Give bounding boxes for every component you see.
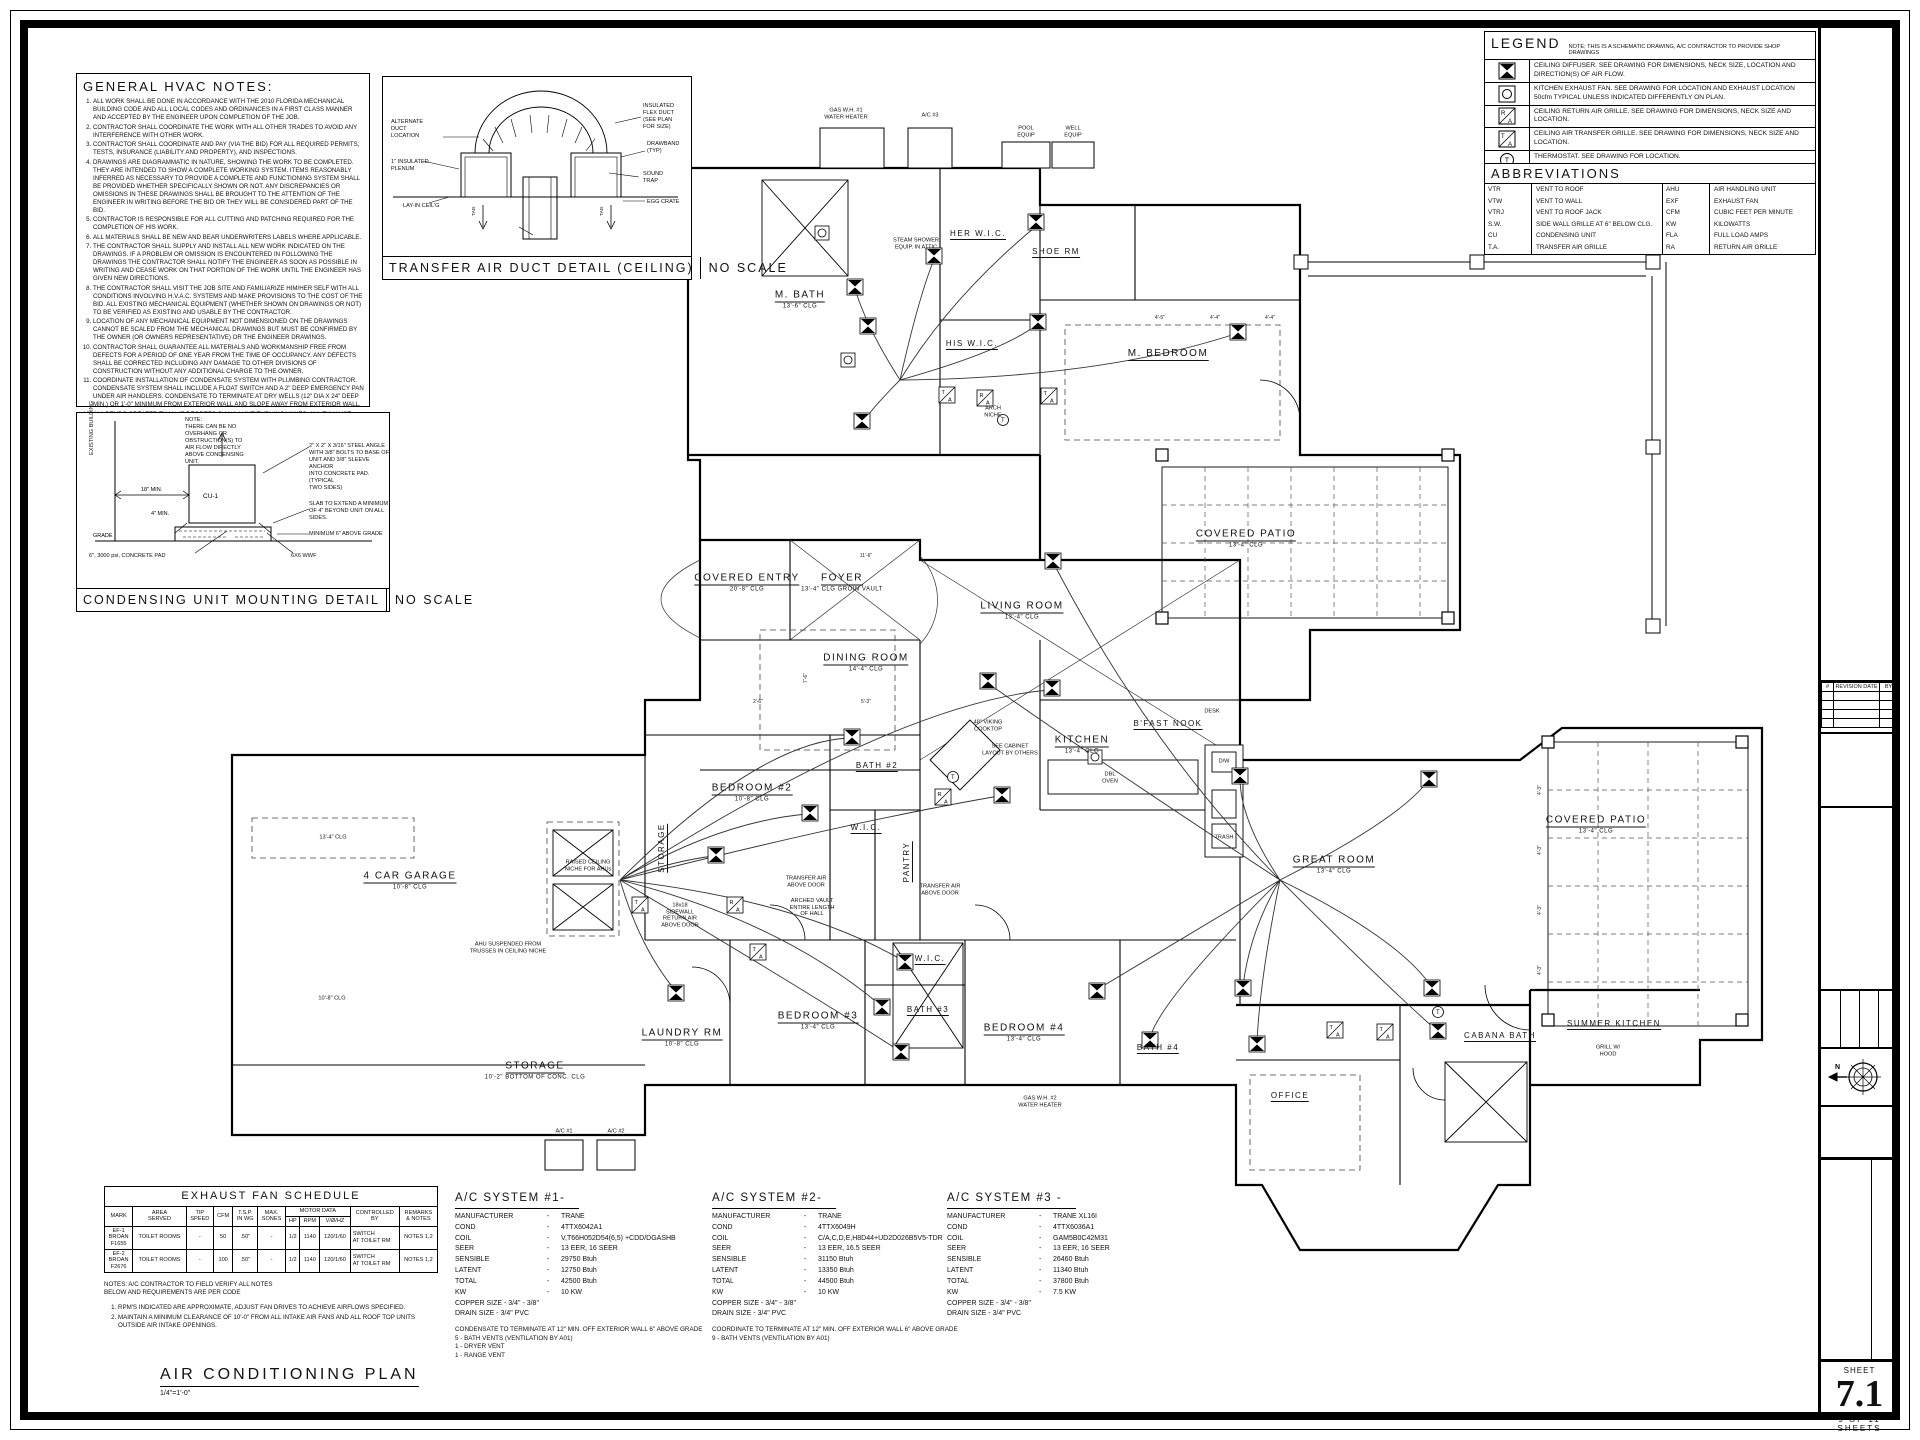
abbreviations-box: ABBREVIATIONS VTRVENT TO ROOF VTWVENT TO… (1484, 163, 1816, 255)
ahu-units (553, 830, 613, 930)
room-label: COVERED PATIO13'-4" CLG (1196, 524, 1296, 549)
sheet-number-box: SHEET 7.1 9 OF 11 SHEETS (1821, 1359, 1898, 1440)
room-label: COVERED PATIO13'-4" CLG (1546, 810, 1646, 835)
abbreviations-table: VTRVENT TO ROOF VTWVENT TO WALL VTRJVENT… (1485, 184, 1815, 254)
ac-system-2-title: A/C SYSTEM #2- (712, 1190, 836, 1209)
annotation: 18x18 SIDEWALL RETURN AIR ABOVE DOOR (661, 903, 699, 930)
annotation: AHU SUSPENDED FROM TRUSSES IN CEILING NI… (470, 941, 546, 954)
svg-text:A: A (1508, 119, 1512, 125)
condensing-detail-box: CU-1 18" MIN. 4" MIN. GRADE NOTE: THERE … (76, 412, 390, 612)
room-label: SHOE RM (1032, 241, 1080, 259)
room-label: LAUNDRY RM10'-8" CLG (642, 1023, 723, 1048)
annotation: DESK (1204, 709, 1219, 716)
walkway-band (1294, 255, 1666, 633)
exhaust-notes-head: NOTES: A/C CONTRACTOR TO FIELD VERIFY AL… (104, 1281, 438, 1298)
legend-row: KITCHEN EXHAUST FAN. SEE DRAWING FOR LOC… (1485, 82, 1815, 105)
cond-angle-label: 2" X 2" X 3/16" STEEL ANGLE WITH 3/8" BO… (309, 443, 389, 492)
annotation: DBL OVEN (1102, 771, 1118, 784)
state-box (1821, 1105, 1898, 1157)
transfer-scale: NO SCALE (700, 257, 796, 279)
ceiling-diffuser-icons (668, 214, 1446, 1060)
room-label: CABANA BATH (1464, 1025, 1536, 1043)
svg-text:TAG: TAG (599, 206, 605, 216)
room-label: KITCHEN13'-4" CLG (1055, 730, 1109, 755)
room-label: OFFICE (1271, 1085, 1309, 1103)
room-label: SUMMER KITCHEN (1567, 1013, 1661, 1031)
transfer-alternate-label: ALTERNATE DUCT LOCATION (391, 119, 423, 140)
page-title: AIR CONDITIONING PLAN (160, 1366, 419, 1387)
transfer-title: TRANSFER AIR DUCT DETAIL (CEILING) (383, 257, 700, 279)
plan-title-block: AIR CONDITIONING PLAN 1/4"=1'-0" (160, 1366, 419, 1397)
room-label: M. BATH13'-6" CLG (775, 285, 825, 310)
cond-pad-label: 6", 3000 psi, CONCRETE PAD (89, 553, 166, 560)
dimension: 5'-3" (861, 699, 871, 705)
exhaust-fan-schedule: EXHAUST FAN SCHEDULE MARK AREA SERVED TI… (104, 1186, 438, 1331)
info-strip (1821, 989, 1898, 1047)
general-notes-title: GENERAL HVAC NOTES: (77, 74, 369, 96)
cond-wwf-label: 6X6 WWF (291, 553, 316, 560)
annotation: STEAM SHOWER EQUIP. IN ATTIC (893, 237, 939, 250)
cond-title: CONDENSING UNIT MOUNTING DETAIL (77, 589, 386, 611)
annotation: GAS W.H. #2 WATER HEATER (1018, 1095, 1061, 1108)
dimension: 11'-6" (860, 553, 872, 559)
room-label: LIVING ROOM13'-4" CLG (980, 596, 1063, 621)
annotation: ARCH NICHE (984, 405, 1001, 418)
cond-above-label: MINIMUM 6" ABOVE GRADE (309, 531, 383, 538)
annotation: 13'-4" CLG (319, 835, 346, 842)
annotation: POOL EQUIP (1017, 125, 1034, 138)
room-label: COVERED ENTRY20'-8" CLG (694, 568, 799, 593)
dimension: 4'-5" (1155, 315, 1165, 321)
transfer-eggcrate-label: EGG CRATE (647, 199, 680, 206)
svg-text:GRADE: GRADE (93, 533, 113, 539)
room-label: 4 CAR GARAGE10'-8" CLG (363, 866, 456, 891)
flex-duct-runs (620, 228, 1435, 1050)
cond-title-bar: CONDENSING UNIT MOUNTING DETAIL NO SCALE (77, 588, 389, 611)
room-label: W.I.C. (851, 817, 882, 835)
seal-box (1821, 732, 1898, 806)
north-arrow-icon: N (1821, 1049, 1895, 1105)
dimension: 4'-3" (1537, 905, 1543, 915)
svg-text:N: N (1835, 1064, 1840, 1071)
room-label: B'FAST NOOK (1133, 713, 1202, 731)
dimension: 4'-4" (1210, 315, 1220, 321)
room-label: BEDROOM #210'-8" CLG (712, 778, 793, 803)
legend-row: RA CEILING RETURN AIR GRILLE. SEE DRAWIN… (1485, 105, 1815, 128)
ac-system-1: A/C SYSTEM #1- MANUFACTURER-TRANE COND-4… (455, 1190, 705, 1360)
transfer-flex-label: INSULATED FLEX DUCT (SEE PLAN FOR SIZE) (643, 103, 674, 131)
cond-scale: NO SCALE (386, 589, 482, 611)
room-label: W.I.C. (915, 948, 946, 966)
room-label: BATH #4 (1137, 1037, 1179, 1055)
svg-text:TAG: TAG (471, 206, 477, 216)
room-label: BATH #2 (856, 755, 898, 773)
annotation: A/C #1 (555, 1129, 572, 1136)
annotation: TRANSFER AIR ABOVE DOOR (786, 875, 827, 888)
transfer-drawband-label: DRAWBAND (TYP) (647, 141, 679, 155)
legend-note: NOTE: THIS IS A SCHEMATIC DRAWING, A/C C… (1569, 44, 1809, 56)
patio-grid-right (1542, 736, 1748, 1026)
annotation: A/C #3 (921, 113, 938, 120)
svg-text:R: R (1501, 111, 1506, 117)
annotation: TRASH (1215, 835, 1234, 842)
revision-table: # REVISION DATE BY (1821, 680, 1898, 732)
annotation: A/C #2 (607, 1129, 624, 1136)
general-hvac-notes-box: GENERAL HVAC NOTES: ALL WORK SHALL BE DO… (76, 73, 370, 407)
plan-scale: 1/4"=1'-0" (160, 1390, 419, 1397)
abbreviations-title: ABBREVIATIONS (1485, 164, 1815, 184)
sheet-number: 7.1 (1821, 1375, 1898, 1415)
dimension: 4'-3" (1537, 785, 1543, 795)
svg-text:CU-1: CU-1 (203, 493, 219, 500)
annotation: GAS W.H. #1 WATER HEATER (824, 107, 867, 120)
room-label: STORAGE (651, 823, 669, 872)
ac-system-2: A/C SYSTEM #2- MANUFACTURER-TRANE COND-4… (712, 1190, 962, 1343)
door-arcs (692, 380, 1530, 1100)
annotation: SEE CABINET LAYOUT BY OTHERS (982, 743, 1038, 756)
legend-row: CEILING DIFFUSER. SEE DRAWING FOR DIMENS… (1485, 59, 1815, 82)
room-label: HER W.I.C. (950, 223, 1006, 241)
svg-text:4" MIN.: 4" MIN. (151, 511, 170, 517)
sheet-count: 9 OF 11 SHEETS (1821, 1415, 1898, 1433)
annotation: 10'-8" CLG (318, 996, 345, 1003)
dimension: 7'-6" (803, 673, 809, 683)
table-row: EF-1 BROAN F1655 TOILET ROOMS - 50 .50" … (105, 1226, 438, 1249)
ac-system-3-title: A/C SYSTEM #3 - (947, 1190, 1076, 1209)
annotation: RAISED CEILING NICHE FOR AHUs (565, 859, 612, 872)
interior-walls (232, 168, 1400, 1185)
transfer-air-grille-icon: TA (1485, 128, 1530, 150)
transfer-layin-label: LAY-IN CEIL'G (403, 203, 440, 210)
ac-system-1-title: A/C SYSTEM #1- (455, 1190, 579, 1209)
client-box (1821, 1157, 1898, 1359)
svg-text:18" MIN.: 18" MIN. (141, 487, 163, 493)
ceiling-diffuser-icon (1485, 60, 1530, 82)
company-box (1821, 806, 1898, 989)
exhaust-notes: RPM'S INDICATED ARE APPROXIMATE, ADJUST … (104, 1304, 438, 1331)
room-label: BATH #3 (907, 999, 949, 1017)
cond-note: NOTE: THERE CAN BE NO OVERHANG OR OBSTRU… (185, 417, 244, 466)
dimension: 4'-4" (1265, 315, 1275, 321)
dimension: 2'-6" (753, 699, 763, 705)
kitchen-exhaust-fan-icon (1485, 83, 1530, 105)
room-label: GREAT ROOM13'-4" CLG (1293, 850, 1375, 875)
cond-slab-label: SLAB TO EXTEND A MINIMUM OF 4" BEYOND UN… (309, 501, 388, 522)
north-compass-box: N (1821, 1047, 1898, 1105)
legend-title: LEGEND (1491, 35, 1561, 51)
table-row: EF-2 BROAN F2676 TOILET ROOMS - 100 .50"… (105, 1249, 438, 1272)
svg-text:A: A (1508, 142, 1512, 148)
title-block: # REVISION DATE BY DesignDrafting78.com,… (1818, 27, 1898, 1413)
annotation: D/W (1219, 759, 1230, 766)
room-label: DINING ROOM14'-4" CLG (823, 648, 908, 673)
cond-existing-label: EXISTING BUILDING (89, 401, 96, 455)
room-label: M. BEDROOM (1128, 343, 1209, 361)
ceiling-dashed (252, 325, 1360, 1170)
svg-text:T: T (1501, 134, 1505, 140)
exterior-walls (232, 168, 1762, 1250)
ac-system-3: A/C SYSTEM #3 - MANUFACTURER-TRANE XL16I… (947, 1190, 1197, 1320)
legend-row: TA CEILING AIR TRANSFER GRILLE. SEE DRAW… (1485, 127, 1815, 150)
annotation: 48" VIKING COOKTOP (974, 719, 1003, 732)
dimension: 4'-3" (1537, 965, 1543, 975)
legend-box: LEGEND NOTE: THIS IS A SCHEMATIC DRAWING… (1484, 31, 1816, 170)
annotation: GRILL W/ HOOD (1596, 1044, 1620, 1057)
room-label: PANTRY (896, 842, 914, 883)
transfer-detail-box: TAG TAG ALTERNATE DUCT LOCATION 1" INSUL… (382, 76, 692, 280)
dimension: 4'-3" (1537, 845, 1543, 855)
exhaust-schedule-title: EXHAUST FAN SCHEDULE (105, 1187, 438, 1207)
room-label: BEDROOM #413'-4" CLG (984, 1018, 1065, 1043)
transfer-air-grille-icons (632, 387, 1393, 1041)
room-label: BEDROOM #313'-4" CLG (778, 1006, 859, 1031)
annotation: ARCHED VAULT ENTIRE LENGTH OF HALL (790, 898, 835, 918)
room-label: FOYER13'-4" CLG GROIN VAULT (801, 568, 883, 593)
annotation: TRANSFER AIR ABOVE DOOR (920, 883, 961, 896)
room-label: STORAGE10'-2" BOTTOM OF CONC. CLG (485, 1056, 586, 1081)
return-air-grille-icon: RA (1485, 106, 1530, 128)
transfer-title-bar: TRANSFER AIR DUCT DETAIL (CEILING) NO SC… (383, 256, 691, 279)
annotation: WELL EQUIP (1064, 125, 1081, 138)
drawing-sheet: RA TA T (0, 0, 1920, 1440)
transfer-sound-label: SOUND TRAP (643, 171, 663, 185)
room-label: HIS W.I.C. (946, 333, 998, 351)
transfer-plenum-label: 1" INSULATED PLENUM (391, 159, 429, 173)
